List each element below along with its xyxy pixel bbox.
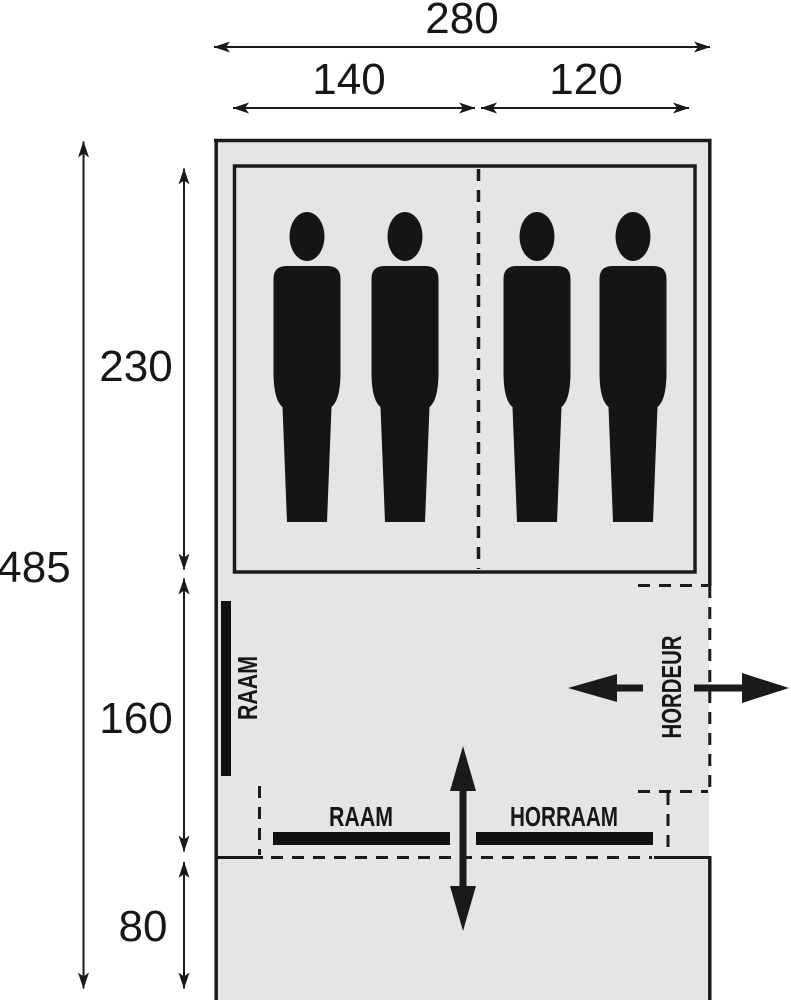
- dim-depth-total-label: 485: [0, 543, 71, 592]
- screen-door-label: HORDEUR: [656, 636, 687, 739]
- dim-depth-sleeping-label: 230: [99, 342, 172, 391]
- side-window-label: RAAM: [232, 656, 263, 720]
- dim-width-right-label: 120: [549, 55, 622, 104]
- screen-window-label: HORRAAM: [510, 801, 618, 832]
- front-window-label: RAAM: [329, 801, 393, 832]
- dim-width-left-label: 140: [312, 55, 385, 104]
- dim-depth-living-label: 160: [99, 694, 172, 743]
- front-window-bar: [273, 832, 450, 845]
- tent-floorplan-page: 280 140 120 485 230 160 80 RAAM RAAM HOR…: [0, 0, 791, 1000]
- dim-width-total-label: 280: [425, 0, 498, 43]
- side-window-bar: [221, 601, 231, 776]
- screen-window-bar: [476, 832, 653, 845]
- dim-depth-porch-label: 80: [119, 902, 168, 951]
- tent-floorplan-diagram: 280 140 120 485 230 160 80 RAAM RAAM HOR…: [0, 0, 791, 1000]
